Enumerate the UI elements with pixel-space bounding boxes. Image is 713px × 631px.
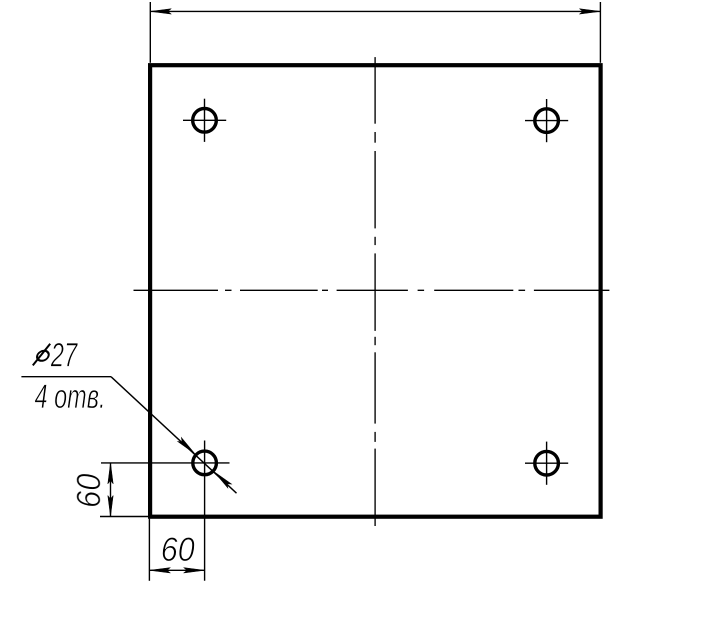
- svg-text:4 отв.: 4 отв.: [35, 378, 106, 416]
- svg-text:60: 60: [70, 474, 108, 509]
- svg-text:60: 60: [161, 531, 195, 569]
- svg-text:27: 27: [50, 336, 78, 374]
